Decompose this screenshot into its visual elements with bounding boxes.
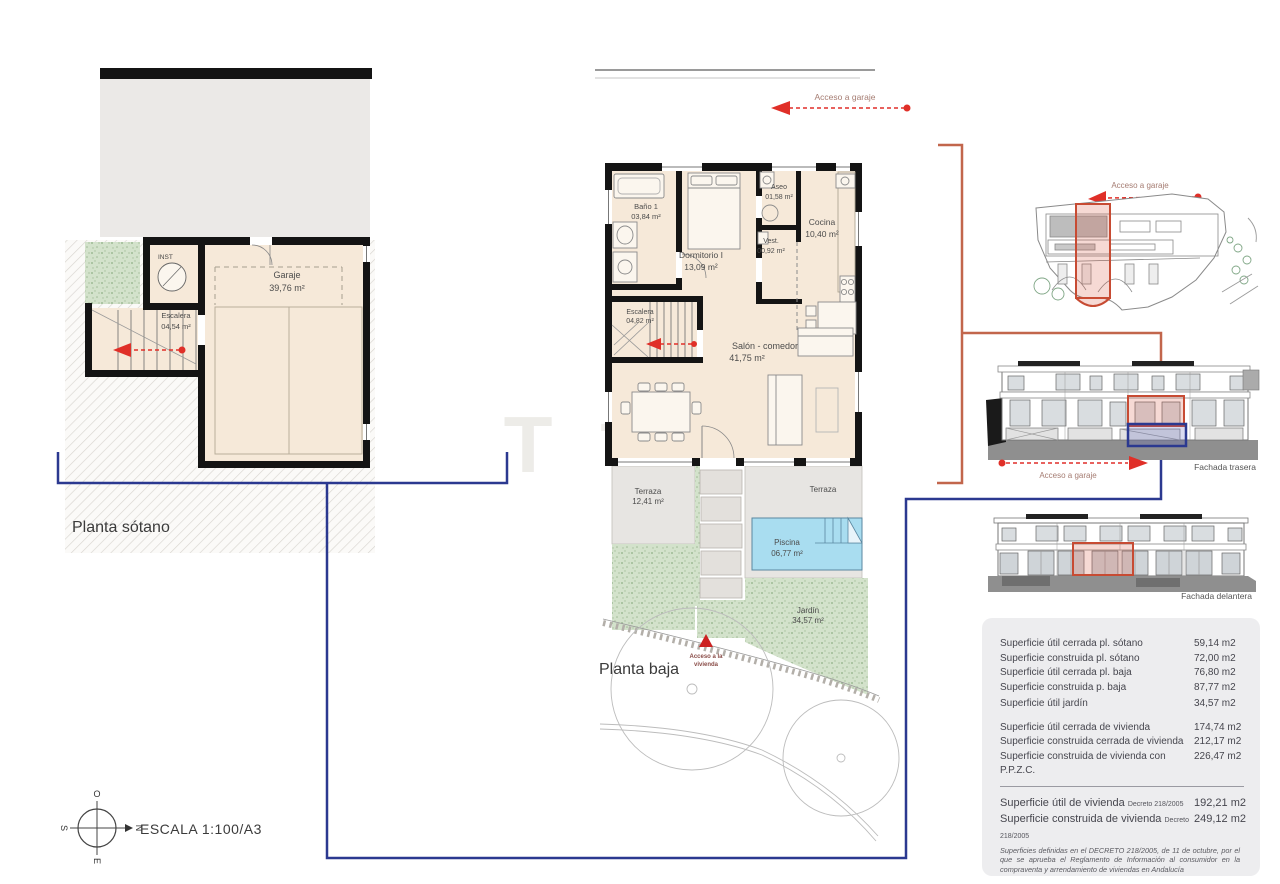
surface-label: Superficie construida pl. sótano — [1000, 652, 1194, 667]
acceso-garaje-label: Acceso a garaje — [1039, 471, 1097, 480]
garden-patch — [85, 242, 140, 304]
room-label: Baño 1 — [634, 202, 658, 211]
surface-label: Superficie construida de vivienda con P.… — [1000, 750, 1194, 779]
surface-value: 212,17 m2 — [1194, 735, 1246, 750]
room-area: 04,82 m² — [626, 318, 654, 325]
unit-highlight-front — [1073, 543, 1133, 575]
decreto-suffix: Decreto 218/2005 — [1128, 801, 1184, 808]
room-label: Jardín — [797, 606, 819, 615]
room-area: 13,09 m² — [684, 262, 718, 272]
room-label: Salón - comedor — [732, 341, 798, 351]
compass: O N E S — [59, 789, 144, 864]
surface-value: 34,57 m2 — [1194, 697, 1246, 712]
surface-row: Superficie construida pl. sótano72,00 m2 — [1000, 652, 1246, 667]
front-elevation-label: Fachada delantera — [1181, 591, 1252, 601]
surface-label: Superficie construida de vivienda — [1000, 813, 1161, 825]
room-label: Escalera — [161, 311, 191, 320]
surface-value: 59,14 m2 — [1194, 637, 1246, 652]
rear-garage-doors — [1006, 428, 1243, 440]
surface-label: Superficie útil de vivienda — [1000, 797, 1125, 809]
surface-row: Superficie construida cerrada de viviend… — [1000, 735, 1246, 750]
scale-label: ESCALA 1:100/A3 — [140, 821, 262, 837]
pool — [752, 518, 862, 570]
unit-highlight-site-curve — [1076, 298, 1110, 306]
room-area: 12,41 m² — [632, 497, 664, 506]
acceso-garaje-label: Acceso a garaje — [815, 92, 876, 102]
north-arrow-icon — [125, 824, 133, 832]
rear-elevation: Fachada trasera Acceso a garaje — [986, 361, 1259, 480]
acceso-vivienda-label: vivienda — [694, 662, 719, 668]
surface-row-decreto: Superficie útil de vivienda Decreto 218/… — [1000, 796, 1246, 812]
decreto-footnote: Superficies definidas en el DECRETO 218/… — [1000, 846, 1246, 875]
acceso-vivienda-label: Acceso a la — [689, 654, 723, 660]
ground-plan: Acceso a garaje Acceso a la vivienda — [595, 70, 911, 841]
surface-row: Superficie útil cerrada de vivienda174,7… — [1000, 721, 1246, 736]
surface-value: 87,77 m2 — [1194, 681, 1246, 696]
surface-row: Superficie útil jardín34,57 m2 — [1000, 697, 1246, 712]
surface-table-panel: Superficie útil cerrada pl. sótano59,14 … — [982, 618, 1260, 876]
front-upper-windows — [1002, 526, 1242, 541]
floorplan-sheet: T T INST Gara — [0, 0, 1280, 884]
garden-right — [745, 578, 868, 695]
surface-label: Superficie útil cerrada pl. baja — [1000, 666, 1194, 681]
acceso-garaje-arrow-icon — [771, 101, 911, 115]
room-label: Terraza — [635, 487, 662, 496]
room-label: Garaje — [273, 270, 300, 280]
room-label: Vest. — [763, 238, 779, 245]
surface-row: Superficie útil cerrada pl. baja76,80 m2 — [1000, 666, 1246, 681]
room-label: Dormitorio I — [679, 250, 723, 260]
compass-west: O — [93, 789, 100, 799]
unit-highlight-site — [1076, 204, 1110, 298]
room-area: 41,75 m² — [729, 353, 765, 363]
garden-center — [697, 600, 745, 638]
surface-label: Superficie construida p. baja — [1000, 681, 1194, 696]
room-label: Aseo — [771, 184, 787, 191]
surface-value: 174,74 m2 — [1194, 721, 1246, 736]
surface-value: 226,47 m2 — [1194, 750, 1246, 779]
room-label: Escalera — [626, 309, 653, 316]
garden-steps — [700, 470, 742, 598]
basement-plan-title: Planta sótano — [72, 519, 170, 536]
room-area: 03,84 m² — [631, 212, 661, 221]
site-road — [1222, 218, 1258, 304]
surface-value: 76,80 m2 — [1194, 666, 1246, 681]
surface-label: Superficie útil cerrada pl. sótano — [1000, 637, 1194, 652]
room-area: 00,92 m² — [757, 248, 785, 255]
surface-row: Superficie construida p. baja87,77 m2 — [1000, 681, 1246, 696]
table-divider — [1000, 786, 1244, 787]
room-area: 10,40 m² — [805, 229, 839, 239]
basement-plan: INST Garaje 39,76 m² Escalera 04,54 m² — [65, 68, 375, 553]
room-area: 01,58 m² — [765, 194, 793, 201]
room-area: 06,77 m² — [771, 549, 803, 558]
room-label: Piscina — [774, 538, 800, 547]
room-label: Cocina — [809, 217, 836, 227]
ground-plan-title: Planta baja — [599, 661, 679, 678]
garden-left — [612, 544, 695, 630]
room-label: Terraza — [810, 485, 837, 494]
room-area: 39,76 m² — [269, 283, 305, 293]
site-plan: Acceso a garaje — [1034, 181, 1258, 310]
room-area: 34,57 m² — [792, 616, 824, 625]
surface-row-decreto: Superficie construida de vivienda Decret… — [1000, 812, 1246, 844]
watermark-letter: T — [504, 400, 553, 489]
surface-value: 249,12 m2 — [1194, 812, 1246, 827]
surface-row: Superficie útil cerrada pl. sótano59,14 … — [1000, 637, 1246, 652]
compass-east: E — [92, 858, 102, 864]
surface-row: Superficie construida de vivienda con P.… — [1000, 750, 1246, 779]
unit-highlight-rear-ground — [1128, 396, 1184, 426]
room-area: 04,54 m² — [161, 322, 191, 331]
unit-highlight-rear-basement — [1128, 424, 1186, 446]
surface-label: Superficie construida cerrada de viviend… — [1000, 735, 1194, 750]
room-label: INST — [158, 254, 173, 261]
surface-label: Superficie útil jardín — [1000, 697, 1194, 712]
rear-elevation-label: Fachada trasera — [1194, 462, 1256, 472]
surface-value: 192,21 m2 — [1194, 796, 1246, 811]
surface-value: 72,00 m2 — [1194, 652, 1246, 667]
acceso-garaje-label: Acceso a garaje — [1111, 181, 1169, 190]
surface-label: Superficie útil cerrada de vivienda — [1000, 721, 1194, 736]
compass-south: S — [59, 825, 69, 831]
front-elevation: Fachada delantera — [988, 514, 1256, 601]
